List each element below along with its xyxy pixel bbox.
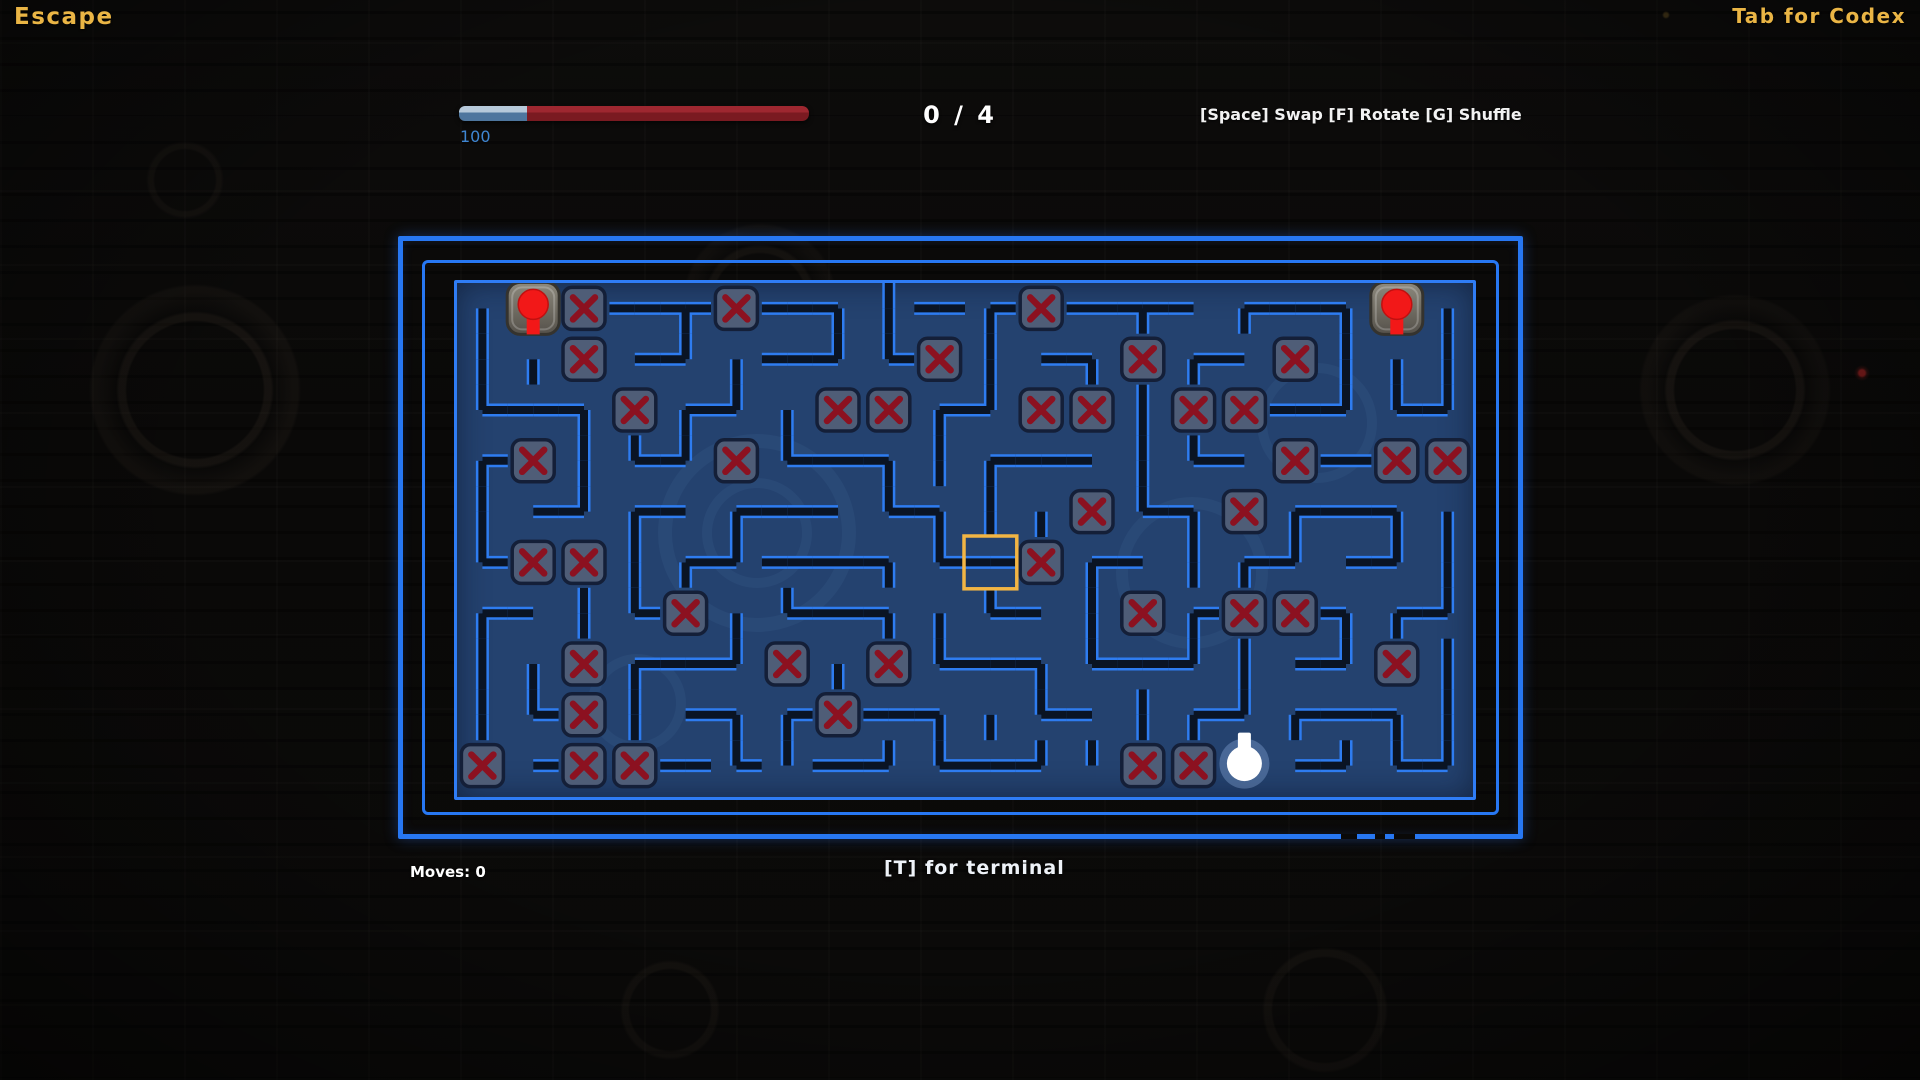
escape-button[interactable]: Escape: [14, 4, 114, 30]
blocked-tile[interactable]: [1427, 440, 1469, 482]
blocked-tile[interactable]: [1020, 389, 1062, 431]
blocked-tile[interactable]: [1223, 491, 1265, 533]
moves-counter: Moves: 0: [410, 863, 486, 881]
maze-frame: [398, 236, 1523, 839]
blocked-tile[interactable]: [1020, 541, 1062, 583]
blocked-tile[interactable]: [919, 338, 961, 380]
player-bulb[interactable]: [1219, 733, 1269, 789]
blocked-tile[interactable]: [766, 643, 808, 685]
blocked-tile[interactable]: [817, 389, 859, 431]
blocked-tile[interactable]: [1071, 389, 1113, 431]
blocked-tile[interactable]: [1274, 592, 1316, 634]
blocked-tile[interactable]: [563, 338, 605, 380]
blocked-tile[interactable]: [1173, 389, 1215, 431]
blocked-tile[interactable]: [614, 745, 656, 787]
blocked-tile[interactable]: [1274, 338, 1316, 380]
blocked-tile[interactable]: [1376, 440, 1418, 482]
frame-dash-detail: [1341, 834, 1415, 839]
blocked-tile[interactable]: [512, 440, 554, 482]
blocked-tile[interactable]: [1223, 592, 1265, 634]
blocked-tile[interactable]: [563, 287, 605, 329]
blocked-tile[interactable]: [614, 389, 656, 431]
blocked-tile[interactable]: [563, 643, 605, 685]
blocked-tile[interactable]: [715, 287, 757, 329]
controls-hint: [Space] Swap [F] Rotate [G] Shuffle: [1200, 105, 1522, 124]
progress-counter: 0 / 4: [880, 101, 1040, 129]
maze-board[interactable]: [454, 280, 1476, 800]
blocked-tile[interactable]: [563, 694, 605, 736]
blocked-tile[interactable]: [817, 694, 859, 736]
codex-button[interactable]: Tab for Codex: [1732, 4, 1906, 28]
blocked-tile[interactable]: [715, 440, 757, 482]
health-bar-depleted: [527, 106, 809, 121]
blocked-tile[interactable]: [1020, 287, 1062, 329]
blocked-tile[interactable]: [563, 541, 605, 583]
blocked-tile[interactable]: [868, 643, 910, 685]
blocked-tile[interactable]: [868, 389, 910, 431]
maze-svg: [457, 283, 1473, 797]
blocked-tile[interactable]: [512, 541, 554, 583]
endpoint-pin: [507, 283, 559, 334]
health-value: 100: [460, 127, 491, 146]
blocked-tile[interactable]: [1376, 643, 1418, 685]
blocked-tile[interactable]: [1274, 440, 1316, 482]
health-bar-fill: [459, 106, 527, 121]
blocked-tile[interactable]: [1173, 745, 1215, 787]
blocked-tile[interactable]: [1223, 389, 1265, 431]
blocked-tile[interactable]: [461, 745, 503, 787]
endpoint-pin: [1371, 283, 1423, 334]
terminal-hint[interactable]: [T] for terminal: [884, 857, 1065, 879]
blocked-tile[interactable]: [1122, 745, 1164, 787]
health-bar: [459, 106, 809, 121]
blocked-tile[interactable]: [665, 592, 707, 634]
blocked-tile[interactable]: [563, 745, 605, 787]
blocked-tile[interactable]: [1071, 491, 1113, 533]
blocked-tile[interactable]: [1122, 592, 1164, 634]
blocked-tile[interactable]: [1122, 338, 1164, 380]
